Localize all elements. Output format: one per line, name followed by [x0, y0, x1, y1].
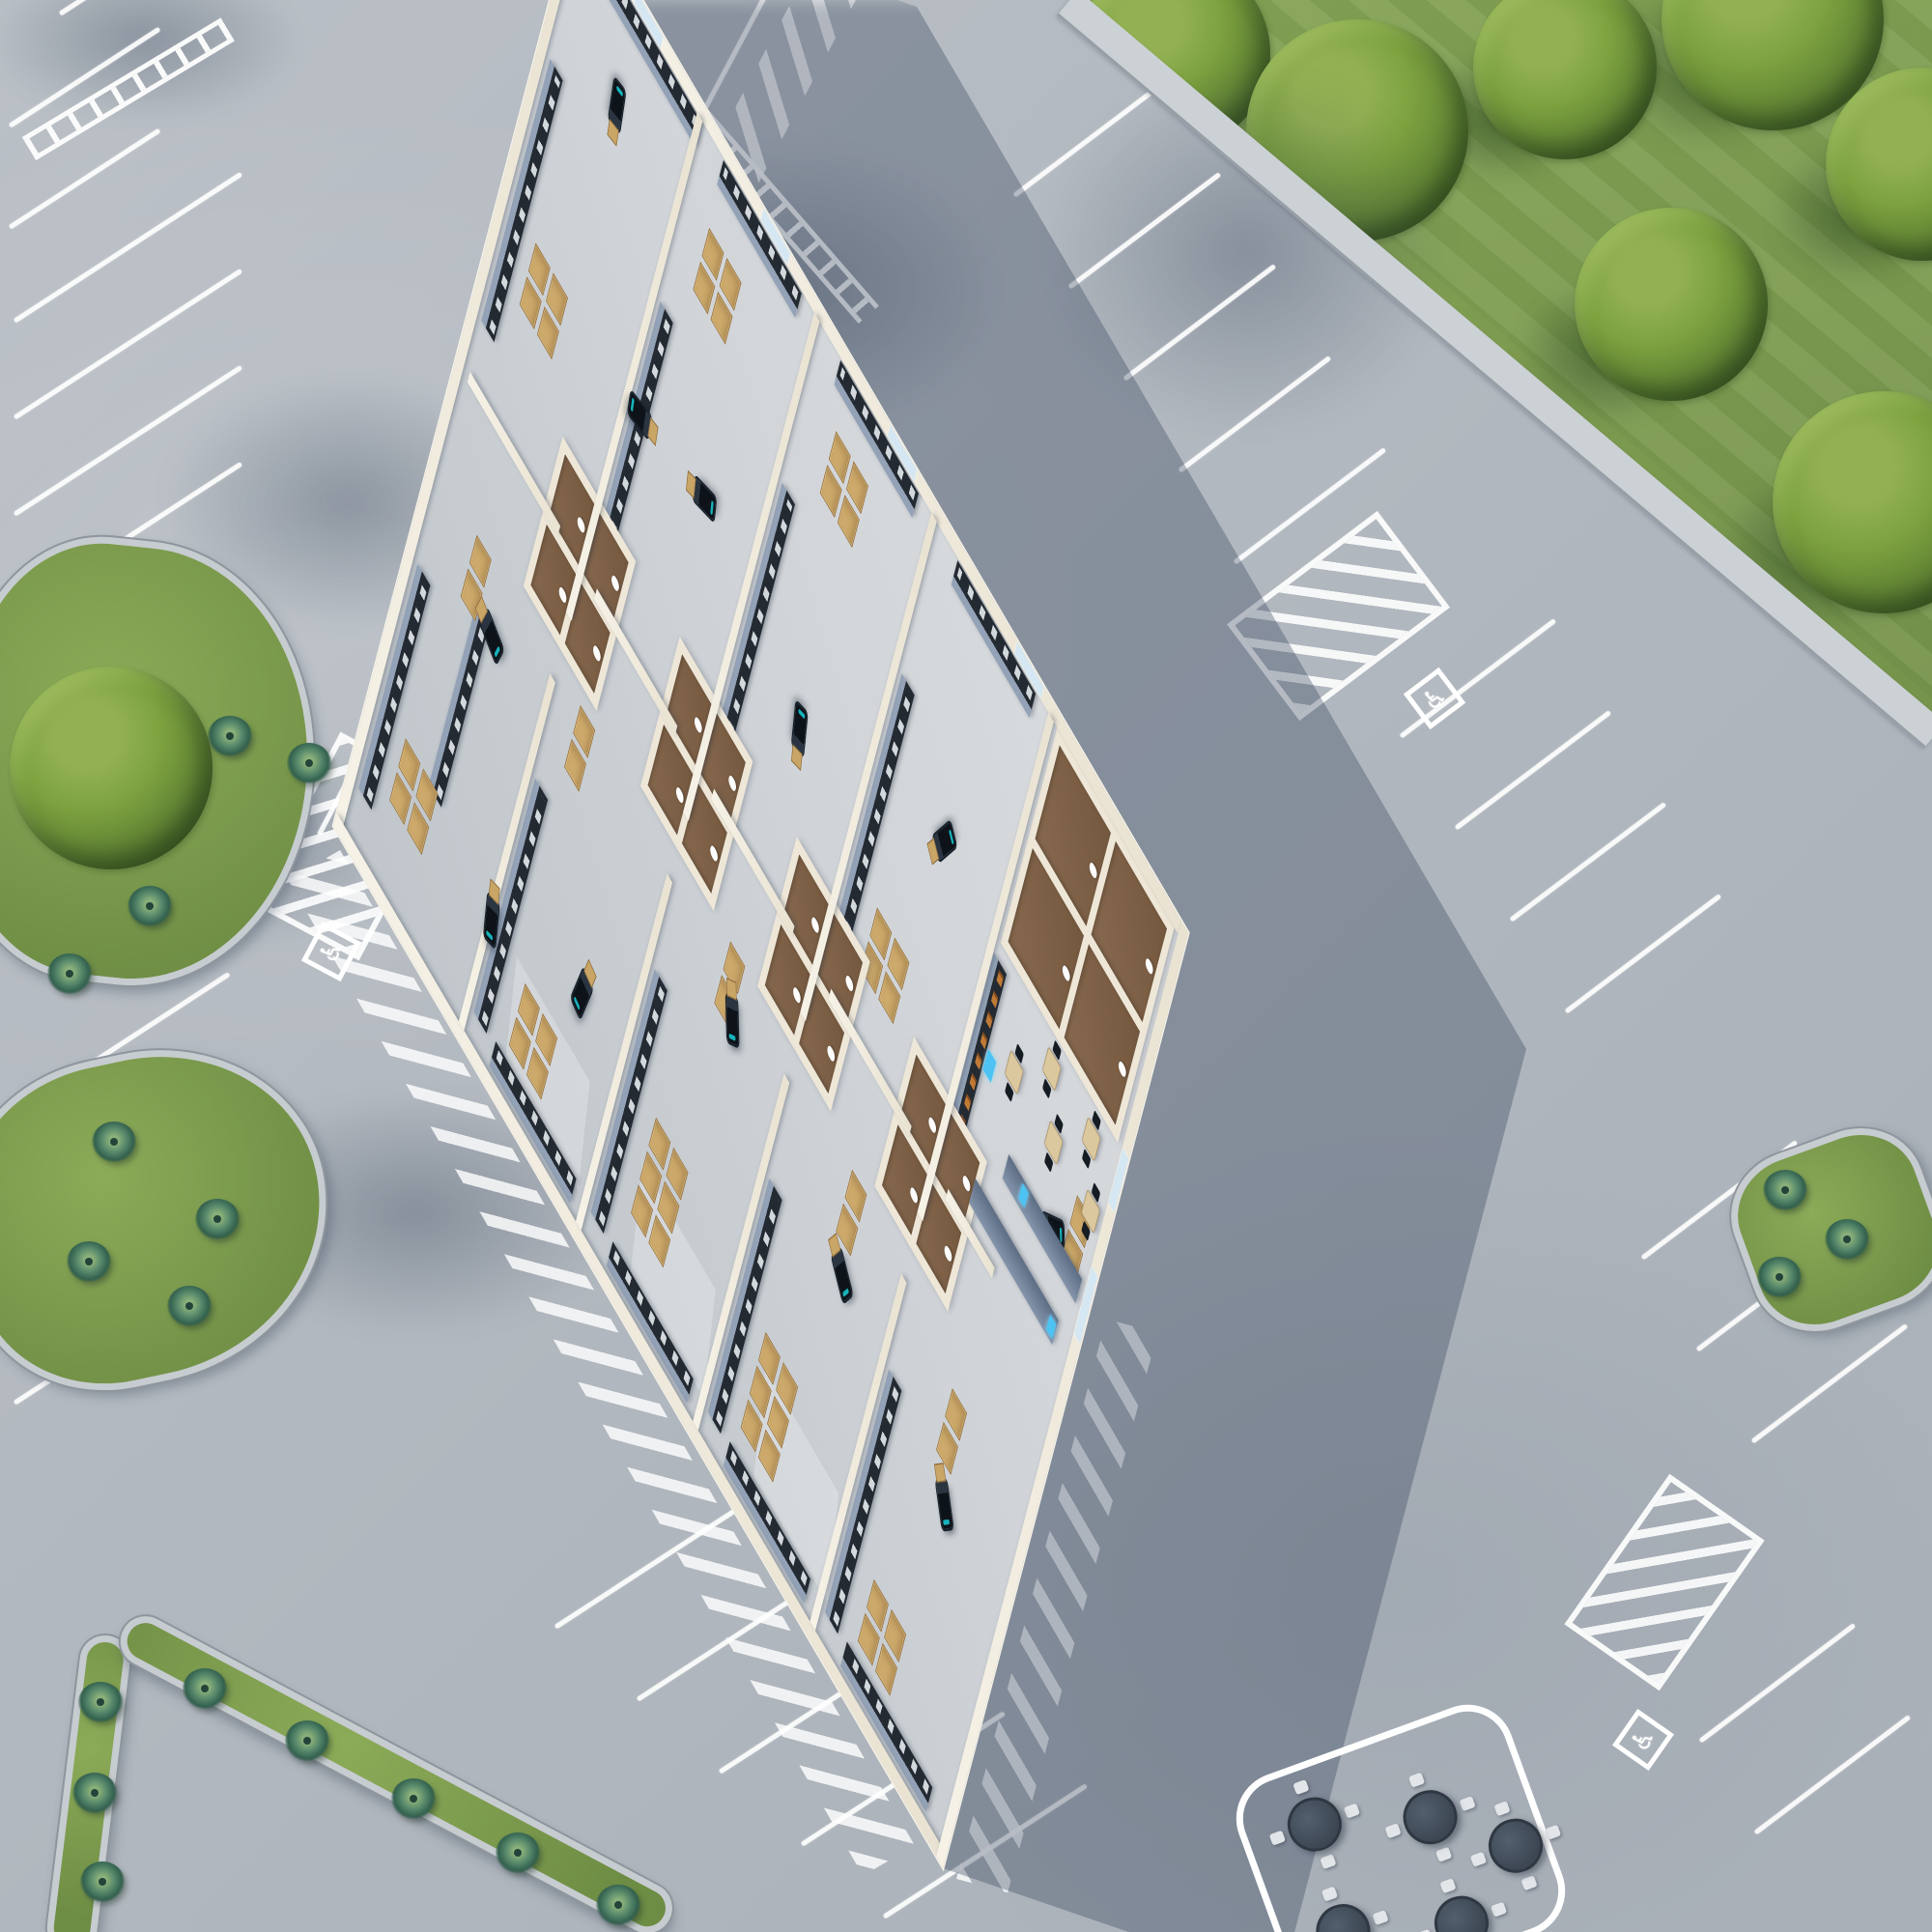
- interior-wall: [459, 673, 555, 1031]
- patio-chair: [1491, 1902, 1507, 1918]
- interior-wall: [810, 1273, 906, 1631]
- cafeteria-table: [1005, 1049, 1024, 1095]
- toilet: [577, 515, 586, 536]
- toilet: [810, 915, 820, 936]
- toilet: [944, 1243, 953, 1264]
- palm-bush: [287, 743, 331, 783]
- interior-wall: [468, 372, 560, 536]
- toilet: [592, 643, 602, 665]
- palm-bush: [1757, 1257, 1802, 1297]
- cafeteria-table: [1082, 1117, 1101, 1163]
- palm-bush: [1763, 1170, 1807, 1210]
- patio-chair: [1435, 1847, 1452, 1862]
- patio-round-table: [1309, 1896, 1378, 1932]
- toilet: [727, 774, 737, 795]
- forklift: [933, 822, 956, 861]
- forklift: [726, 994, 739, 1046]
- island-palms-southeast: [1714, 1110, 1932, 1350]
- toilet: [826, 1043, 836, 1065]
- patio-chair: [1493, 1801, 1510, 1816]
- patio-chair: [1321, 1887, 1338, 1902]
- island-west-lower: [0, 1018, 358, 1416]
- patio-chair: [1459, 1796, 1475, 1811]
- patio-round-table: [1396, 1782, 1465, 1852]
- pallet-cluster: [520, 242, 568, 359]
- palm-bush: [596, 1885, 640, 1925]
- patio-chair: [1320, 1854, 1336, 1869]
- patio-round-table: [1280, 1790, 1350, 1860]
- toilet: [694, 715, 703, 736]
- patio-round-table: [1481, 1811, 1550, 1881]
- toilet: [675, 785, 685, 807]
- toilet: [927, 1115, 937, 1136]
- patio-chair: [1269, 1831, 1286, 1846]
- forklift: [694, 477, 716, 521]
- toilet: [1062, 963, 1071, 984]
- cafeteria-table: [1081, 1188, 1100, 1235]
- palm-bush: [128, 886, 172, 926]
- patio-chair: [1470, 1852, 1487, 1867]
- patio-chair: [1408, 1773, 1425, 1788]
- palm-bush: [496, 1833, 540, 1873]
- palm-bush: [285, 1720, 329, 1761]
- patio-chair: [1384, 1823, 1401, 1838]
- palm-bush: [1825, 1219, 1869, 1260]
- pallet-cluster: [936, 1388, 967, 1475]
- palm-bush: [391, 1778, 436, 1819]
- palm-bush: [183, 1668, 227, 1709]
- patio-chair: [1520, 1875, 1537, 1890]
- toilet: [1145, 955, 1154, 977]
- forklift: [609, 78, 625, 132]
- toilet: [962, 1174, 972, 1195]
- patio-chair: [1293, 1779, 1309, 1795]
- toilet: [611, 573, 620, 594]
- patio-round-table: [1427, 1889, 1496, 1932]
- palm-bush: [92, 1122, 136, 1162]
- interior-wall: [566, 112, 702, 620]
- island-tree: [10, 667, 213, 869]
- palm-bush: [208, 716, 252, 756]
- palm-bush: [67, 1241, 111, 1282]
- palm-bush: [80, 1861, 125, 1902]
- aerial-warehouse-scene: ♿♿♿: [0, 0, 1932, 1932]
- toilet: [792, 985, 802, 1007]
- toilet: [709, 843, 719, 865]
- toilet: [844, 974, 854, 995]
- forklift: [832, 1249, 852, 1302]
- pallet-cluster: [693, 228, 741, 345]
- patio-chair: [1344, 1804, 1360, 1819]
- toilet: [909, 1185, 919, 1207]
- palm-bush: [72, 1773, 117, 1813]
- patio-chair: [1439, 1878, 1456, 1893]
- patio-chair: [1372, 1910, 1388, 1925]
- storage-shelf-row: [429, 599, 491, 808]
- palm-bush: [47, 953, 92, 994]
- pallet-cluster: [564, 705, 595, 792]
- palm-bush: [195, 1199, 240, 1239]
- forklift: [571, 969, 592, 1018]
- planter-strip: [112, 1607, 681, 1932]
- palm-bush: [78, 1682, 123, 1722]
- cafeteria-table: [1042, 1046, 1062, 1093]
- palm-bush: [167, 1286, 212, 1326]
- cafeteria-table: [1044, 1120, 1064, 1166]
- toilet: [1118, 1059, 1127, 1080]
- forklift: [792, 702, 807, 756]
- pallet-cluster: [820, 431, 868, 548]
- toilet: [558, 585, 568, 607]
- toilet: [1089, 860, 1098, 881]
- pallet-cluster: [389, 738, 438, 855]
- forklift: [936, 1480, 952, 1529]
- pallet-cluster: [836, 1170, 867, 1257]
